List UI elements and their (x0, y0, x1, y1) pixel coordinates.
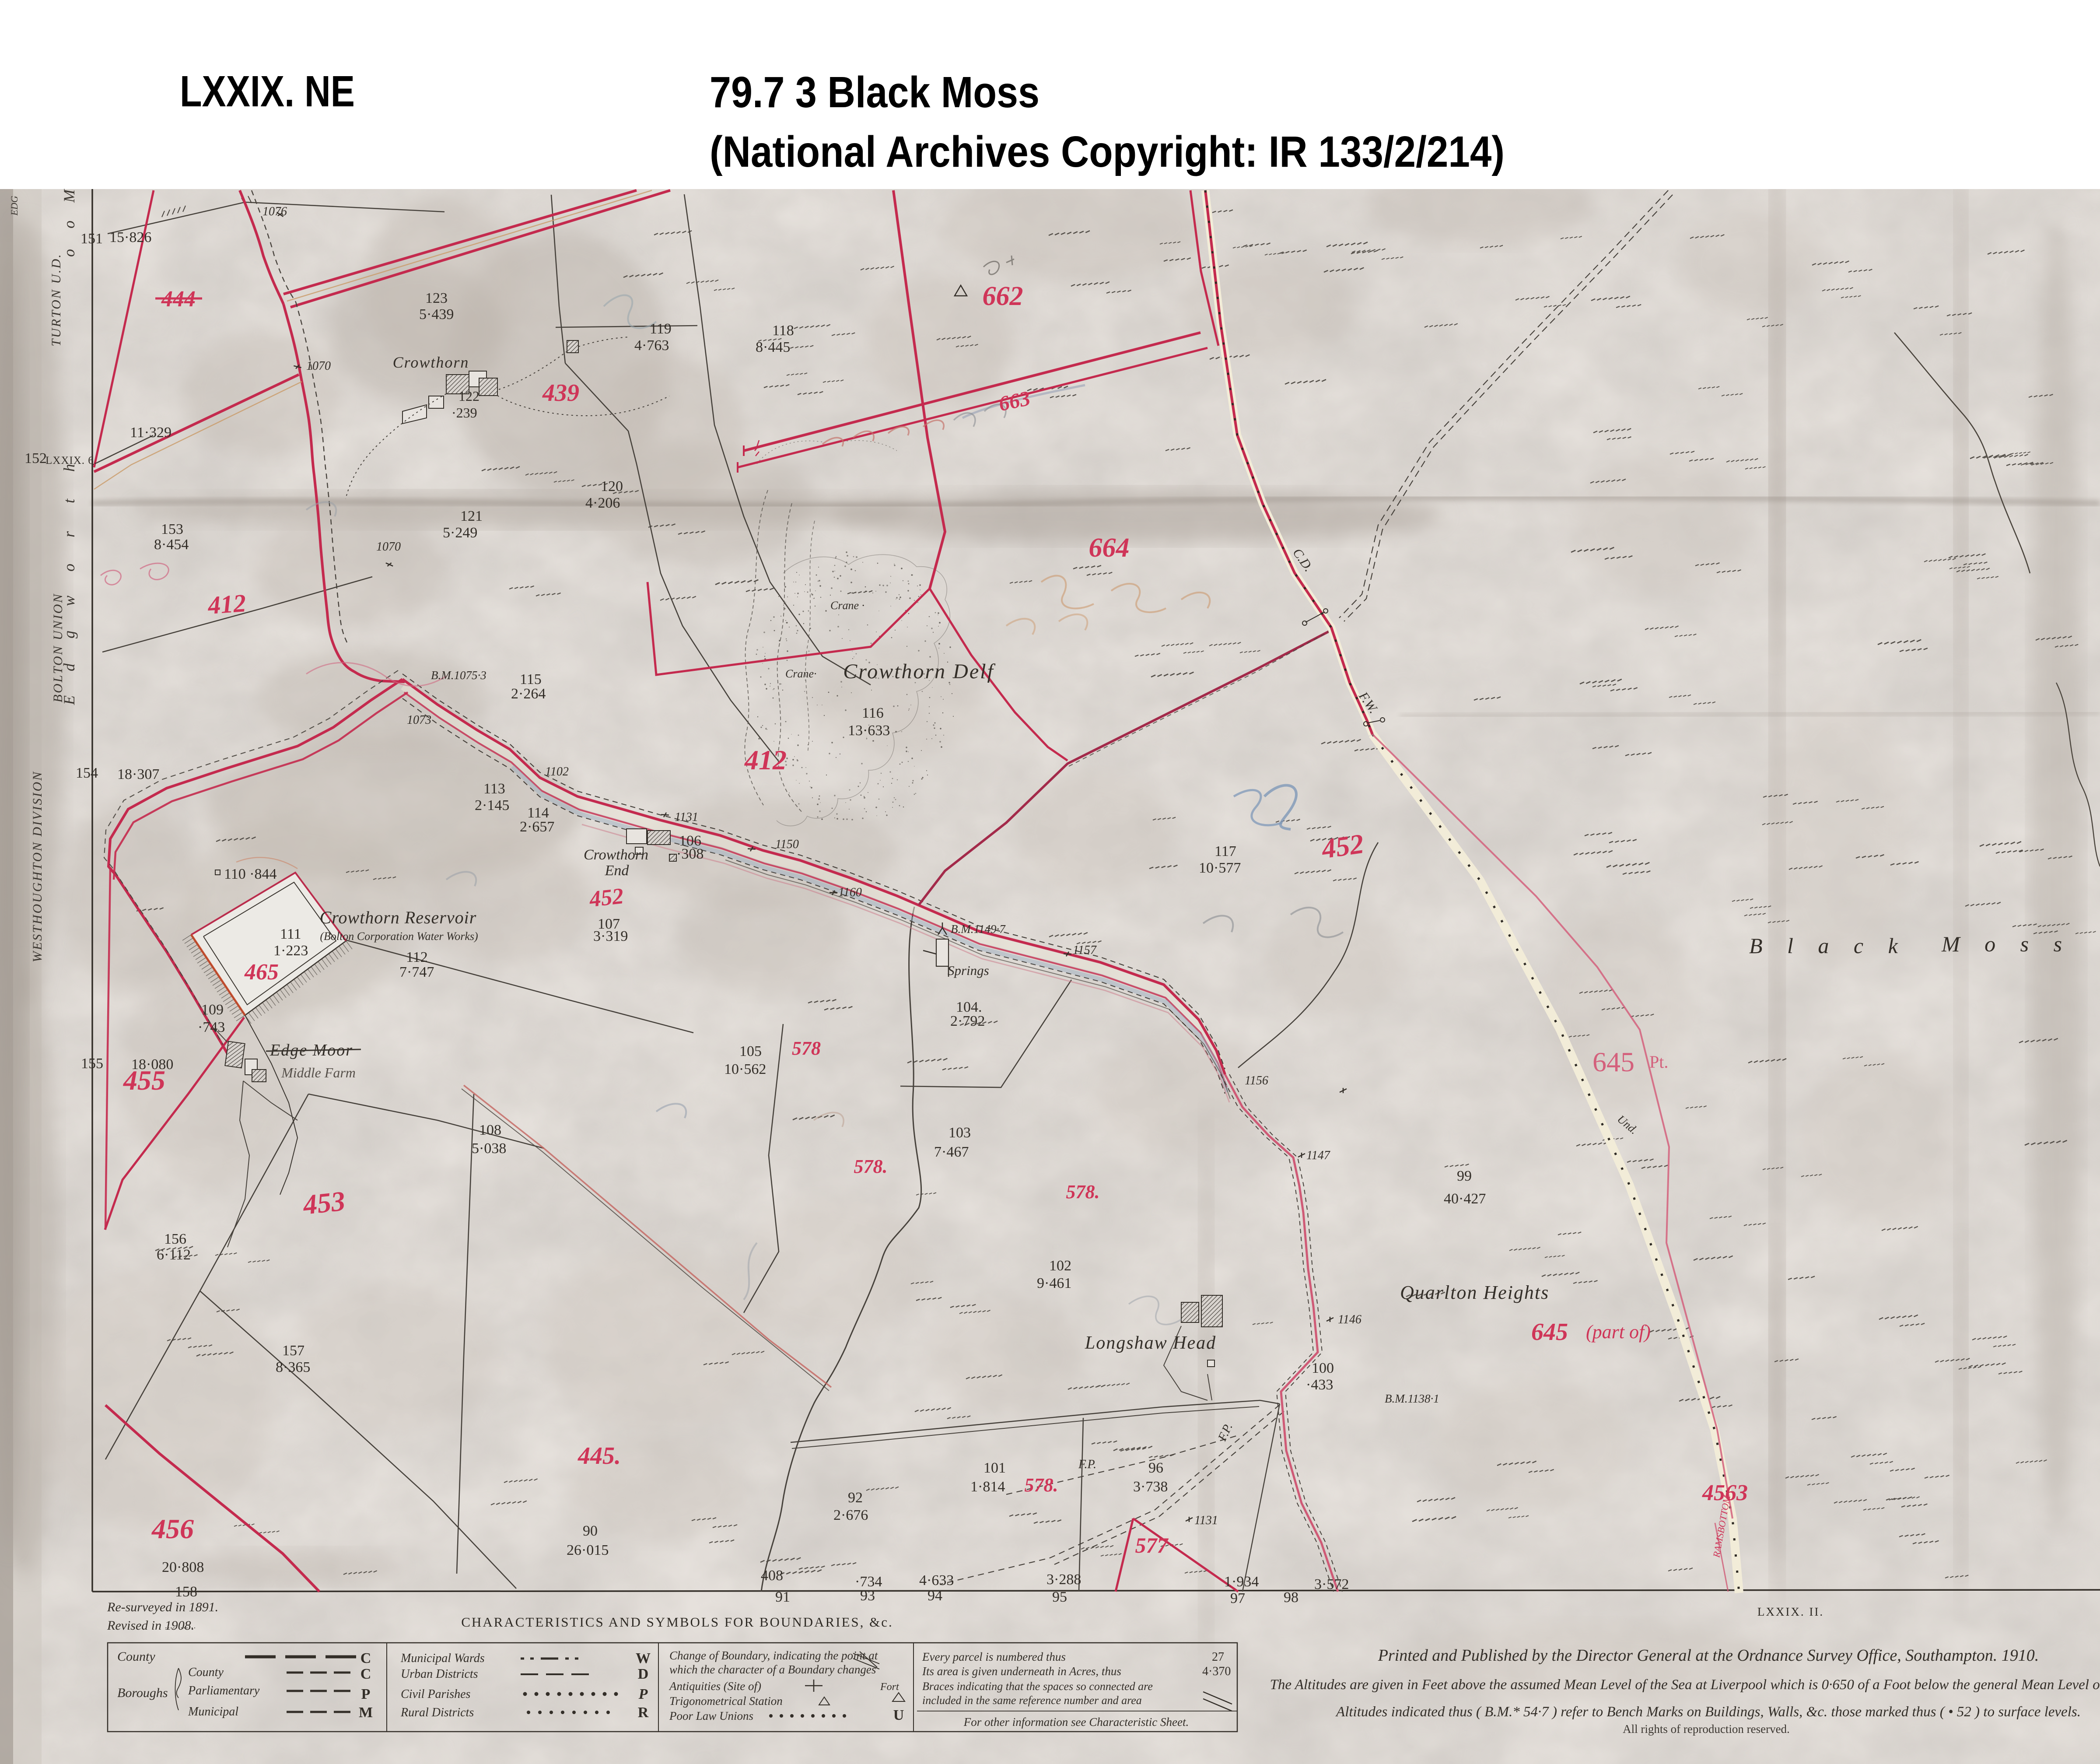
svg-text:Every parcel is numbered thus: Every parcel is numbered thus (922, 1650, 1066, 1663)
svg-text:5·249: 5·249 (443, 525, 477, 541)
svg-text:·433: ·433 (1306, 1377, 1333, 1393)
svg-text:8·365: 8·365 (276, 1359, 310, 1375)
svg-text:P: P (638, 1686, 648, 1702)
svg-text:455: 455 (123, 1065, 165, 1096)
svg-text:11·329: 11·329 (130, 424, 171, 441)
svg-text:Fort: Fort (880, 1681, 899, 1693)
svg-text:C: C (360, 1666, 371, 1682)
svg-text:79.7 3 Black Moss: 79.7 3 Black Moss (710, 68, 1039, 117)
svg-text:1·814: 1·814 (970, 1479, 1005, 1495)
svg-text:93: 93 (860, 1588, 875, 1604)
svg-text:P: P (361, 1686, 371, 1702)
svg-text:8·445: 8·445 (756, 339, 790, 355)
svg-text:10·562: 10·562 (724, 1061, 766, 1077)
svg-text:2·264: 2·264 (511, 686, 546, 702)
svg-text:LXXIX. 6.: LXXIX. 6. (45, 455, 97, 466)
svg-text:1147: 1147 (1306, 1149, 1330, 1162)
svg-text:99: 99 (1457, 1168, 1472, 1184)
svg-text:662: 662 (983, 281, 1023, 311)
svg-text:(National Archives Copyright:: (National Archives Copyright: IR 133/2/2… (710, 127, 1505, 176)
svg-text:1160: 1160 (838, 886, 862, 899)
svg-text:20·808: 20·808 (162, 1559, 204, 1575)
svg-text:Change of Boundary, indicating: Change of Boundary, indicating the point… (669, 1649, 878, 1662)
svg-text:1156: 1156 (1245, 1074, 1268, 1087)
svg-text:4·370: 4·370 (1202, 1665, 1231, 1678)
svg-text:7·467: 7·467 (934, 1144, 969, 1160)
svg-text:117: 117 (1214, 843, 1236, 859)
svg-text:Urban Districts: Urban Districts (401, 1667, 478, 1681)
svg-text:96: 96 (1148, 1460, 1163, 1476)
svg-text:102: 102 (1049, 1258, 1071, 1274)
svg-text:116: 116 (862, 705, 884, 721)
svg-text:Crowthorn: Crowthorn (393, 354, 469, 371)
svg-text:118: 118 (772, 323, 794, 339)
svg-text:LXXIX. II.: LXXIX. II. (1757, 1605, 1824, 1618)
svg-text:·239: ·239 (451, 405, 477, 421)
svg-text:CHARACTERISTICS AND SYMBOLS: CHARACTERISTICS AND SYMBOLS FOR BOUNDARI… (461, 1614, 893, 1630)
svg-text:123: 123 (425, 290, 448, 306)
svg-text:5·439: 5·439 (419, 306, 454, 323)
svg-text:Antiquities (Site of): Antiquities (Site of) (668, 1680, 761, 1693)
svg-text:B.M.1149·7: B.M.1149·7 (951, 922, 1006, 936)
svg-text:1·934: 1·934 (1224, 1574, 1259, 1590)
svg-text:1070: 1070 (376, 540, 401, 554)
svg-text:108: 108 (479, 1122, 501, 1138)
svg-text:1070: 1070 (306, 359, 331, 373)
svg-text:6·112: 6·112 (157, 1247, 191, 1263)
svg-text:2·145: 2·145 (475, 797, 509, 814)
svg-text:Parliamentary: Parliamentary (188, 1684, 260, 1697)
svg-text:408: 408 (761, 1568, 783, 1584)
svg-text:Municipal: Municipal (188, 1705, 238, 1718)
svg-text:Pt.: Pt. (1649, 1052, 1668, 1072)
svg-text:o: o (60, 221, 78, 228)
svg-text:156: 156 (164, 1231, 186, 1247)
svg-text:3·572: 3·572 (1314, 1576, 1349, 1592)
svg-text:15·826: 15·826 (109, 229, 151, 245)
svg-text:included in the same reference: included in the same reference number an… (922, 1694, 1142, 1707)
svg-text:1102: 1102 (545, 765, 569, 779)
svg-text:M: M (60, 189, 78, 203)
svg-text:97: 97 (1230, 1590, 1245, 1606)
svg-text:Springs: Springs (948, 963, 989, 978)
svg-text:Civil Parishes: Civil Parishes (401, 1687, 471, 1701)
svg-text:92: 92 (848, 1490, 863, 1506)
svg-text:Middle Farm: Middle Farm (281, 1065, 356, 1080)
svg-text:158: 158 (175, 1584, 197, 1600)
svg-text:Crowthorn Reservoir: Crowthorn Reservoir (320, 908, 477, 927)
svg-text:13·633: 13·633 (848, 722, 890, 739)
svg-text:465: 465 (244, 960, 279, 985)
svg-text:40·427: 40·427 (1444, 1191, 1486, 1207)
svg-text:BOLTON UNION: BOLTON UNION (51, 593, 65, 703)
svg-text:g: g (60, 631, 78, 638)
svg-text:Trigonometrical Station: Trigonometrical Station (669, 1694, 783, 1708)
svg-text:Boroughs: Boroughs (117, 1686, 168, 1700)
svg-text:·308: ·308 (676, 846, 703, 862)
svg-text:EDG: EDG (9, 196, 20, 216)
svg-text:578.: 578. (1025, 1474, 1058, 1496)
svg-text:98: 98 (1284, 1589, 1298, 1606)
svg-text:122: 122 (458, 388, 479, 404)
svg-text:645: 645 (1531, 1319, 1568, 1346)
svg-text:3·738: 3·738 (1133, 1479, 1168, 1495)
svg-text:E: E (60, 695, 78, 705)
svg-text:100: 100 (1312, 1360, 1334, 1376)
svg-text:27: 27 (1212, 1650, 1224, 1664)
svg-text:26·015: 26·015 (567, 1542, 609, 1558)
svg-text:All rights of reproduction res: All rights of reproduction reserved. (1623, 1722, 1790, 1736)
svg-text:577: 577 (1135, 1533, 1169, 1557)
svg-text:445.: 445. (577, 1442, 621, 1469)
svg-text:578.: 578. (1066, 1181, 1100, 1203)
svg-text:M o s s: M o s s (1941, 932, 2072, 956)
svg-text:County: County (188, 1666, 224, 1679)
svg-text:578.: 578. (854, 1156, 888, 1177)
svg-text:B.M.1138·1: B.M.1138·1 (1385, 1392, 1439, 1405)
svg-text:90: 90 (583, 1523, 598, 1539)
svg-text:452: 452 (588, 884, 625, 912)
svg-text:456: 456 (151, 1513, 194, 1544)
svg-text:154: 154 (76, 765, 98, 781)
svg-text:9·461: 9·461 (1037, 1275, 1071, 1291)
svg-text:R: R (638, 1704, 649, 1721)
svg-text:which the character of a Bound: which the character of a Boundary change… (669, 1663, 876, 1676)
svg-text:Revised in 1908.: Revised in 1908. (107, 1618, 194, 1633)
svg-text:1150: 1150 (775, 838, 799, 851)
svg-text:4·763: 4·763 (634, 337, 669, 354)
svg-text:113: 113 (483, 781, 505, 797)
svg-text:95: 95 (1052, 1589, 1067, 1605)
svg-text:TURTON U.D.: TURTON U.D. (49, 253, 63, 346)
svg-text:5·038: 5·038 (472, 1140, 506, 1157)
svg-text:103: 103 (948, 1125, 971, 1141)
svg-text:r: r (60, 531, 78, 537)
svg-text:121: 121 (460, 508, 483, 524)
svg-text:Braces indicating that the spa: Braces indicating that the spaces so con… (922, 1680, 1153, 1693)
svg-text:453: 453 (301, 1185, 346, 1220)
svg-text:439: 439 (542, 379, 579, 407)
svg-text:The Altitudes are given in Fee: The Altitudes are given in Feet above th… (1270, 1677, 2100, 1693)
svg-text:C: C (360, 1650, 371, 1666)
svg-text:(Bolton Corporation Water Work: (Bolton Corporation Water Works) (320, 930, 478, 943)
svg-text:1·223: 1·223 (273, 943, 308, 959)
svg-text:10·577: 10·577 (1199, 860, 1241, 876)
svg-text:412: 412 (744, 744, 787, 775)
svg-text:452: 452 (1319, 828, 1366, 865)
svg-text:Longshaw Head: Longshaw Head (1085, 1333, 1216, 1353)
svg-text:D: D (638, 1666, 649, 1682)
svg-text:1157: 1157 (1073, 943, 1097, 957)
svg-text:119: 119 (650, 321, 672, 337)
svg-text:Rural Districts: Rural Districts (400, 1706, 474, 1719)
svg-text:M: M (359, 1704, 373, 1721)
svg-text:7·747: 7·747 (399, 964, 434, 980)
svg-text:Crane ·: Crane · (830, 599, 864, 612)
svg-text:W: W (636, 1650, 651, 1666)
svg-text:94: 94 (927, 1588, 942, 1604)
svg-text:157: 157 (282, 1343, 304, 1359)
svg-text:91: 91 (775, 1589, 790, 1605)
svg-text:151: 151 (80, 231, 103, 247)
svg-text:645: 645 (1592, 1046, 1634, 1077)
svg-text:3·288: 3·288 (1046, 1571, 1081, 1588)
svg-text:o: o (60, 564, 78, 572)
svg-text:153: 153 (161, 521, 183, 537)
svg-text:For other information see Char: For other information see Characteristic… (963, 1715, 1189, 1729)
svg-text:578: 578 (792, 1038, 821, 1059)
svg-text:End: End (605, 863, 630, 879)
svg-text:4563: 4563 (1702, 1480, 1748, 1505)
svg-text:1146: 1146 (1338, 1313, 1361, 1326)
svg-text:Municipal Wards: Municipal Wards (400, 1652, 485, 1665)
svg-text:d: d (60, 663, 78, 671)
svg-text:664: 664 (1089, 533, 1130, 563)
svg-text:WESTHOUGHTON DIVISION: WESTHOUGHTON DIVISION (30, 771, 45, 962)
svg-text:Altitudes indicated thus ( B.M: Altitudes indicated thus ( B.M.* 54·7 ) … (1335, 1704, 2081, 1720)
svg-text:Crowthorn Delf: Crowthorn Delf (843, 660, 995, 683)
svg-text:B.M.1075·3: B.M.1075·3 (431, 669, 486, 682)
svg-text:3·319: 3·319 (593, 928, 628, 944)
svg-text:18·307: 18·307 (117, 766, 159, 782)
svg-text:111: 111 (280, 926, 301, 942)
svg-text:(part of): (part of) (1586, 1321, 1651, 1343)
svg-text:110 ·844: 110 ·844 (224, 866, 277, 882)
svg-text:1073: 1073 (407, 713, 431, 727)
svg-text:Quarlton Heights: Quarlton Heights (1400, 1282, 1549, 1303)
svg-text:4·206: 4·206 (585, 495, 620, 511)
svg-text:B l a c k: B l a c k (1749, 933, 1907, 958)
svg-text:105: 105 (739, 1043, 762, 1059)
svg-text:4·633: 4·633 (919, 1572, 954, 1589)
svg-text:Its area is given underneath i: Its area is given underneath in Acres, t… (922, 1665, 1121, 1678)
svg-text:115: 115 (520, 671, 542, 687)
svg-text:Re-surveyed in 1891.: Re-surveyed in 1891. (107, 1600, 218, 1614)
svg-text:1131: 1131 (675, 810, 698, 824)
svg-text:120: 120 (601, 478, 623, 494)
svg-text:8·454: 8·454 (154, 537, 189, 553)
svg-text:2·657: 2·657 (520, 819, 554, 835)
svg-text:112: 112 (406, 949, 428, 965)
svg-text:109: 109 (201, 1002, 224, 1018)
svg-text:2·676: 2·676 (833, 1507, 868, 1523)
svg-text:1131: 1131 (1194, 1514, 1218, 1527)
svg-text:Printed and Published by the D: Printed and Published by the Director Ge… (1378, 1646, 2039, 1665)
svg-text:412: 412 (206, 589, 247, 620)
svg-text:o: o (60, 249, 78, 257)
svg-text:Crane·: Crane· (785, 667, 817, 680)
svg-text:152: 152 (24, 450, 47, 466)
svg-text:U: U (893, 1707, 904, 1723)
svg-text:2·792: 2·792 (950, 1013, 985, 1029)
svg-text:w: w (60, 596, 78, 606)
svg-text:Poor Law Unions: Poor Law Unions (669, 1709, 753, 1722)
svg-text:155: 155 (81, 1056, 103, 1072)
svg-text:101: 101 (983, 1460, 1006, 1476)
svg-text:·743: ·743 (198, 1019, 225, 1035)
svg-text:County: County (117, 1649, 155, 1664)
svg-text:LXXIX. NE: LXXIX. NE (180, 67, 355, 116)
svg-text:t: t (60, 498, 78, 503)
svg-text:F.P.: F.P. (1078, 1458, 1096, 1471)
svg-text:Crowthorn: Crowthorn (584, 847, 648, 863)
